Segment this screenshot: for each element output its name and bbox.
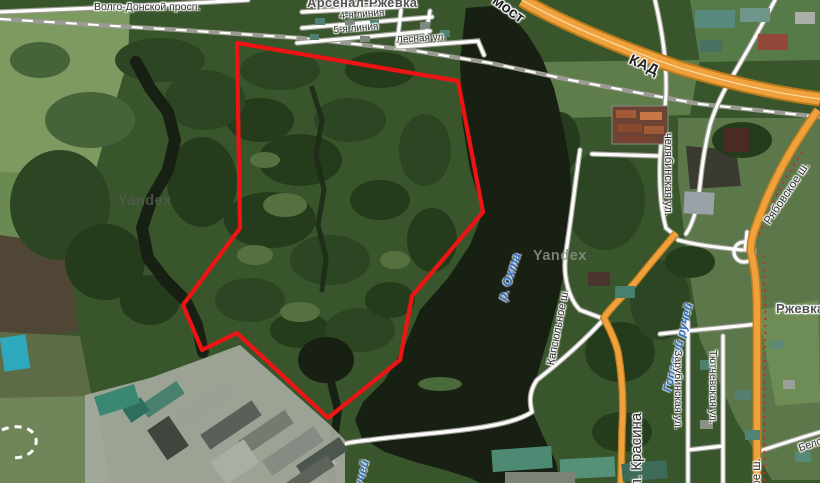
map-viewport[interactable]: Волго-Донской просп. Арсенал-Ржевка 4-я … xyxy=(0,0,820,483)
satellite-map-canvas[interactable] xyxy=(0,0,820,483)
river-island xyxy=(418,377,462,391)
cyan-building xyxy=(0,334,30,371)
pond xyxy=(298,337,354,383)
